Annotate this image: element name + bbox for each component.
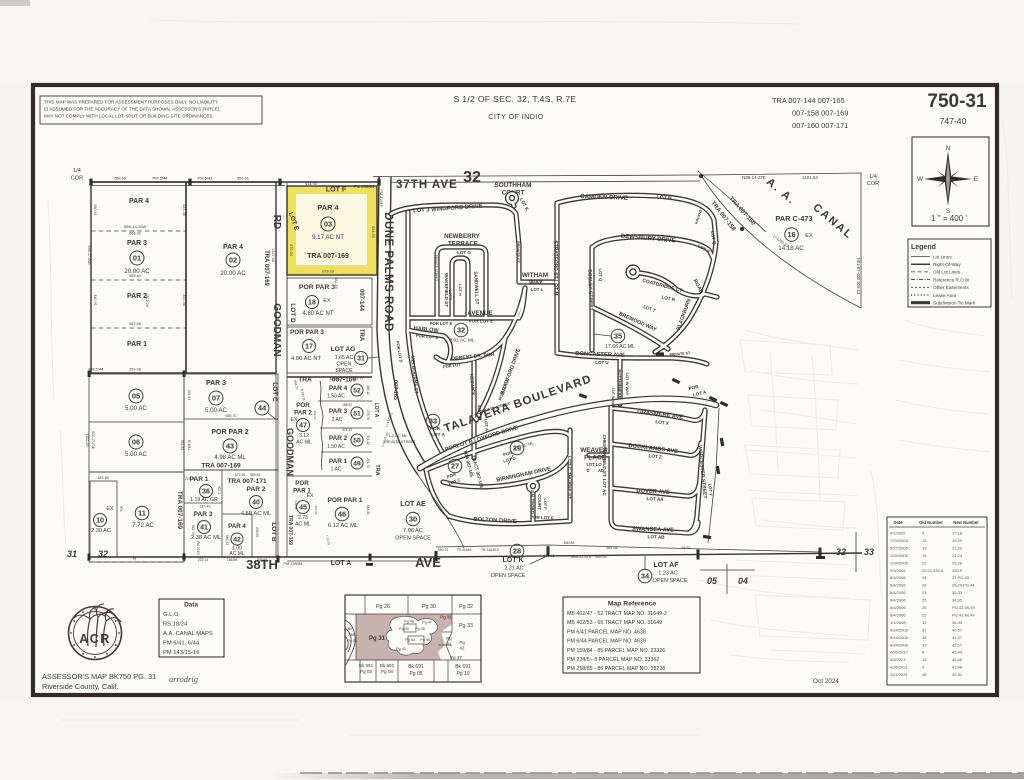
svg-text:arrodrig: arrodrig	[169, 674, 198, 684]
svg-text:34: 34	[641, 572, 650, 581]
svg-text:4/1/2002: 4/1/2002	[890, 531, 906, 536]
svg-text:699.95: 699.95	[596, 555, 607, 559]
svg-text:06: 06	[132, 438, 140, 447]
svg-text:LOT F: LOT F	[543, 499, 547, 511]
svg-text:7.06 AC: 7.06 AC	[403, 528, 423, 534]
svg-text:PAR 3: PAR 3	[127, 240, 147, 247]
svg-text:TRA 007-169: TRA 007-169	[176, 491, 183, 530]
svg-text:49-52: 49-52	[952, 672, 963, 677]
svg-text:19: 19	[922, 545, 927, 550]
svg-text:42: 42	[460, 646, 465, 651]
svg-text:183.50: 183.50	[97, 476, 109, 480]
svg-text:LOT W WAY: LOT W WAY	[625, 373, 630, 396]
svg-text:LOT C: LOT C	[271, 382, 278, 402]
svg-text:20.00 AC: 20.00 AC	[220, 270, 246, 277]
svg-text:S89-14-29W: S89-14-29W	[124, 224, 147, 229]
svg-text:S00-17-00E: S00-17-00E	[91, 431, 95, 450]
svg-text:4.98 AC ML: 4.98 AC ML	[214, 455, 246, 461]
svg-text:659.70: 659.70	[226, 414, 237, 418]
svg-text:25: 25	[922, 605, 927, 610]
svg-text:LOT F: LOT F	[448, 290, 452, 301]
svg-text:307.1: 307.1	[217, 486, 221, 494]
svg-text:17: 17	[305, 344, 313, 351]
svg-text:S 1/2 OF SEC. 32, T.4S, R.7E: S 1/2 OF SEC. 32, T.4S, R.7E	[454, 94, 577, 104]
svg-text:186.89: 186.89	[227, 558, 237, 562]
svg-text:658.68: 658.68	[114, 177, 126, 181]
svg-text:Bk 691: Bk 691	[380, 663, 395, 668]
svg-text:5/27/2005: 5/27/2005	[890, 545, 909, 550]
svg-text:GOODMAN: GOODMAN	[285, 428, 295, 476]
svg-text:43: 43	[226, 442, 234, 451]
svg-text:26: 26	[922, 583, 927, 588]
svg-text:Pg 43: Pg 43	[396, 647, 405, 651]
svg-text:188.52: 188.52	[342, 403, 352, 407]
svg-text:1.65 AC: 1.65 AC	[335, 355, 354, 361]
svg-text:AC ML: AC ML	[229, 551, 245, 557]
svg-text:LOT L: LOT L	[531, 287, 544, 292]
svg-text:45: 45	[299, 505, 307, 512]
svg-text:659.61: 659.61	[237, 177, 249, 181]
svg-text:748: 748	[348, 633, 354, 637]
svg-text:S89-51: S89-51	[250, 473, 261, 477]
svg-text:EX: EX	[307, 493, 314, 499]
svg-text:24: 24	[922, 575, 927, 580]
svg-text:7/23/2004: 7/23/2004	[890, 538, 909, 543]
svg-text:1.50 AC: 1.50 AC	[327, 394, 345, 400]
svg-text:Pg 49: Pg 49	[399, 627, 408, 631]
svg-text:LOT A: LOT A	[373, 403, 379, 418]
svg-text:COURT: COURT	[537, 494, 542, 510]
svg-text:12: 12	[922, 620, 927, 625]
svg-text:201.72: 201.72	[366, 458, 370, 468]
svg-text:27,PG.43: 27,PG.43	[952, 575, 970, 580]
svg-text:PRIVATE ST: PRIVATE ST	[516, 241, 520, 263]
svg-text:OPEN SPACE: OPEN SPACE	[491, 573, 526, 579]
svg-text:N: N	[946, 145, 951, 152]
svg-text:N89-31-51E: N89-31-51E	[571, 555, 592, 559]
svg-text:52: 52	[353, 387, 361, 394]
svg-text:Pg 01: Pg 01	[347, 639, 357, 643]
svg-text:COR: COR	[71, 176, 83, 182]
svg-text:LOT C THURNE ST.: LOT C THURNE ST.	[566, 456, 572, 500]
svg-text:01: 01	[133, 254, 141, 263]
svg-text:47,48: 47,48	[952, 665, 963, 670]
svg-text:17,18: 17,18	[952, 531, 963, 536]
svg-text:25: 25	[922, 612, 927, 617]
svg-text:37: 37	[922, 627, 927, 632]
svg-text:LOT U: LOT U	[595, 360, 608, 365]
svg-text:PAR 1: PAR 1	[329, 458, 348, 465]
svg-text:327.62: 327.62	[314, 505, 318, 515]
svg-text:10: 10	[96, 518, 104, 525]
svg-text:TRA 007-144 007-165: TRA 007-144 007-165	[772, 96, 845, 105]
svg-text:330-9: 330-9	[952, 568, 963, 573]
svg-text:14.18 AC: 14.18 AC	[778, 245, 804, 252]
svg-text:DUNE PALMS ROAD: DUNE PALMS ROAD	[382, 212, 394, 332]
svg-text:POR: POR	[430, 426, 441, 431]
svg-text:PAR 2: PAR 2	[247, 486, 266, 493]
svg-text:TRA 007-169: TRA 007-169	[307, 253, 349, 260]
svg-text:679.94: 679.94	[289, 244, 293, 256]
svg-text:Pg 47: Pg 47	[422, 621, 431, 625]
svg-text:47: 47	[299, 423, 307, 430]
svg-text:EX: EX	[323, 298, 331, 304]
svg-text:SOUTHHAM: SOUTHHAM	[495, 182, 532, 189]
svg-text:LOT Q: LOT Q	[598, 268, 603, 282]
svg-text:1/24/2006: 1/24/2006	[890, 553, 909, 558]
svg-text:37TH AVE: 37TH AVE	[396, 179, 458, 191]
svg-text:27: 27	[451, 462, 459, 471]
svg-text:ASSESSOR'S MAP BK750 PG. 31: ASSESSOR'S MAP BK750 PG. 31	[42, 672, 156, 681]
svg-text:02: 02	[229, 256, 237, 265]
svg-text:42: 42	[233, 536, 241, 543]
svg-text:D: D	[586, 468, 589, 473]
svg-text:N01-07-49E 929.13: N01-07-49E 929.13	[856, 258, 861, 295]
svg-text:278.76: 278.76	[366, 410, 370, 420]
svg-text:LOT LO: LOT LO	[586, 462, 602, 467]
svg-text:PM 159/84: PM 159/84	[283, 561, 303, 566]
svg-text:TRA: TRA	[298, 377, 312, 384]
svg-text:19,20: 19,20	[952, 538, 963, 543]
svg-text:POR PAR 2: POR PAR 2	[211, 429, 248, 436]
svg-text:1327.55: 1327.55	[271, 248, 275, 262]
svg-text:45,46: 45,46	[952, 657, 963, 662]
svg-text:LOT AE: LOT AE	[400, 501, 426, 508]
svg-text:LOT F: LOT F	[326, 187, 347, 194]
svg-text:4/26/2017: 4/26/2017	[890, 650, 909, 655]
svg-text:572.26: 572.26	[235, 473, 245, 477]
svg-text:44: 44	[258, 404, 267, 413]
svg-text:PAR 3: PAR 3	[206, 380, 226, 387]
svg-text:Oct 2024: Oct 2024	[813, 678, 839, 685]
svg-text:PAR 3: PAR 3	[329, 408, 348, 415]
svg-text:2.30 AC: 2.30 AC	[91, 528, 111, 534]
svg-text:750-31: 750-31	[927, 91, 987, 112]
svg-text:36: 36	[202, 489, 210, 496]
svg-text:Pg 48: Pg 48	[404, 620, 413, 624]
svg-text:1 " = 400 ': 1 " = 400 '	[931, 214, 967, 223]
svg-text:LOT B: LOT B	[270, 522, 277, 542]
svg-text:1.50 AC: 1.50 AC	[327, 444, 345, 450]
svg-text:LOT A: LOT A	[331, 560, 352, 567]
svg-text:POR: POR	[295, 480, 309, 487]
svg-text:PM 6/44: PM 6/44	[153, 176, 169, 181]
svg-text:W: W	[917, 176, 924, 183]
svg-text:Pg 44: Pg 44	[405, 638, 414, 642]
svg-text:PAR 4: PAR 4	[223, 244, 243, 251]
svg-text:29: 29	[513, 444, 521, 453]
svg-text:331.53: 331.53	[180, 440, 184, 450]
svg-text:MB 402/47 - 52 TRACT MAP NO: MB 402/47 - 52 TRACT MAP NO. 31649-2	[567, 611, 667, 617]
svg-text:25: 25	[922, 598, 927, 603]
svg-text:20.00 AC: 20.00 AC	[124, 268, 150, 275]
svg-text:38TH: 38TH	[246, 557, 278, 572]
svg-text:EX: EX	[119, 506, 124, 512]
svg-text:Pg: Pg	[459, 640, 465, 645]
svg-text:Right-Of-Way: Right-Of-Way	[933, 262, 961, 267]
svg-text:634.90: 634.90	[371, 226, 375, 238]
svg-text:35: 35	[614, 332, 622, 341]
svg-text:OPEN: OPEN	[337, 362, 352, 368]
svg-text:40: 40	[252, 500, 260, 507]
svg-text:Pg: Pg	[446, 636, 452, 641]
svg-text:TRA 007-169: TRA 007-169	[287, 515, 293, 545]
svg-text:30-33: 30-33	[952, 590, 963, 595]
svg-text:E: E	[974, 176, 978, 183]
svg-text:296.58: 296.58	[255, 527, 259, 537]
svg-text:40,57: 40,57	[952, 627, 963, 632]
svg-text:03: 03	[324, 220, 332, 229]
svg-text:1101.84: 1101.84	[802, 175, 818, 180]
svg-text:TR 31649: TR 31649	[457, 548, 472, 552]
svg-text:747-40: 747-40	[940, 116, 967, 126]
svg-text:9/24/2008: 9/24/2008	[890, 627, 909, 632]
svg-text:RD: RD	[271, 215, 282, 229]
svg-text:48: 48	[922, 672, 927, 677]
svg-text:374.12: 374.12	[366, 435, 370, 445]
svg-text:1322.20: 1322.20	[85, 434, 89, 447]
svg-text:Pg 46: Pg 46	[415, 627, 424, 631]
svg-text:TERRACE: TERRACE	[448, 241, 478, 248]
svg-text:RS 18/24: RS 18/24	[163, 622, 188, 628]
svg-text:POR PAR 3: POR PAR 3	[299, 284, 335, 291]
svg-text:PM 224/5: PM 224/5	[196, 541, 200, 555]
svg-text:5.00 AC: 5.00 AC	[125, 451, 148, 458]
svg-text:11/1/2024: 11/1/2024	[890, 672, 908, 677]
svg-text:660.43: 660.43	[225, 535, 229, 545]
svg-text:POR LOT E: POR LOT E	[469, 319, 494, 324]
svg-text:614.81: 614.81	[366, 505, 370, 515]
svg-text:Date: Date	[893, 520, 903, 525]
svg-text:PRIVATE STREET: PRIVATE STREET	[434, 255, 438, 282]
svg-text:658.42: 658.42	[129, 232, 141, 236]
svg-text:49: 49	[353, 460, 361, 467]
svg-text:05: 05	[707, 576, 718, 586]
svg-text:NEWBERRY: NEWBERRY	[444, 233, 481, 240]
svg-text:43,44: 43,44	[952, 650, 963, 655]
svg-text:9/24/2008: 9/24/2008	[890, 642, 909, 647]
svg-text:1 AC: 1 AC	[331, 467, 342, 473]
svg-text:17.66 AC ML: 17.66 AC ML	[605, 344, 635, 350]
svg-text:374.12: 374.12	[342, 428, 352, 432]
svg-text:Subdivision Tic Mark: Subdivision Tic Mark	[933, 301, 976, 306]
svg-text:POR LOT E: POR LOT E	[430, 321, 453, 326]
svg-text:TRA: TRA	[358, 329, 364, 342]
svg-text:54.52: 54.52	[682, 546, 691, 550]
svg-text:116.71: 116.71	[313, 411, 317, 420]
svg-text:PAR C-473: PAR C-473	[775, 214, 812, 223]
svg-text:PM 224/5 - 8 PARCEL MAP NO.: PM 224/5 - 8 PARCEL MAP NO. 33362	[567, 657, 659, 663]
svg-text:2 AC: 2 AC	[332, 417, 343, 423]
svg-text:Pg 31: Pg 31	[440, 615, 452, 620]
svg-text:SPACE: SPACE	[335, 368, 353, 374]
svg-text:007-169: 007-169	[332, 377, 357, 384]
svg-text:PAR 4: PAR 4	[129, 198, 149, 205]
svg-text:39: 39	[922, 642, 927, 647]
svg-text:217.42: 217.42	[200, 505, 211, 509]
svg-text:PAR 2: PAR 2	[329, 435, 348, 442]
svg-text:OPEN SPACE: OPEN SPACE	[395, 536, 431, 542]
svg-text:LOT A: LOT A	[431, 432, 445, 437]
svg-text:4.80 AC NT: 4.80 AC NT	[291, 356, 321, 362]
svg-text:Pg 32: Pg 32	[459, 604, 473, 610]
svg-text:PG.43,48,49: PG.43,48,49	[952, 612, 975, 617]
svg-text:4.58 AC ML: 4.58 AC ML	[241, 511, 272, 517]
svg-text:Pg 30: Pg 30	[422, 604, 436, 610]
svg-text:PAR 2: PAR 2	[294, 410, 312, 417]
svg-text:18: 18	[308, 300, 316, 307]
svg-text:THIS MAP WAS PREPARED FOR ASSE: THIS MAP WAS PREPARED FOR ASSESSMENT PUR…	[44, 100, 218, 105]
svg-text:13: 13	[922, 657, 927, 662]
svg-text:11: 11	[138, 509, 146, 518]
svg-text:PAR 4: PAR 4	[329, 385, 348, 392]
svg-text:PG.43,45-49: PG.43,45-49	[952, 605, 975, 610]
svg-text:PM 143/15-16: PM 143/15-16	[163, 650, 199, 656]
svg-text:7.72 AC: 7.72 AC	[132, 522, 155, 529]
svg-text:550.73: 550.73	[438, 548, 448, 552]
svg-text:2.75: 2.75	[298, 515, 308, 521]
svg-text:007-160 007-171: 007-160 007-171	[792, 121, 848, 130]
svg-text:Pg 37: Pg 37	[450, 655, 462, 660]
svg-text:Bk: Bk	[348, 627, 353, 631]
svg-text:23: 23	[922, 590, 927, 595]
svg-text:PAR 4: PAR 4	[317, 203, 339, 212]
svg-text:PRIVATE STREET: PRIVATE STREET	[384, 440, 416, 444]
svg-text:LOT G: LOT G	[457, 250, 471, 255]
svg-text:IS ASSUMED FOR THE ACCURACY OF: IS ASSUMED FOR THE ACCURACY OF THE DATA …	[44, 107, 221, 112]
svg-text:32: 32	[457, 326, 465, 335]
svg-text:Old Lot Lines: Old Lot Lines	[933, 270, 961, 275]
svg-text:8/4/2006: 8/4/2006	[890, 605, 906, 610]
svg-text:8/4/2006: 8/4/2006	[890, 598, 906, 603]
svg-text:4/26/2021: 4/26/2021	[890, 665, 909, 670]
svg-text:1/1/2008: 1/1/2008	[890, 620, 906, 625]
svg-text:22: 22	[922, 560, 927, 565]
svg-text:180.84: 180.84	[564, 541, 575, 545]
svg-text:New Number: New Number	[953, 520, 979, 525]
svg-text:MAY NOT COMPLY WITH LOCAL LOT-: MAY NOT COMPLY WITH LOCAL LOT-SPLIT OR B…	[44, 114, 214, 119]
svg-text:007-144: 007-144	[358, 289, 364, 312]
svg-text:PAR 2: PAR 2	[127, 293, 147, 300]
svg-text:Map Reference: Map Reference	[608, 601, 657, 608]
svg-text:LOT AG: LOT AG	[331, 346, 356, 353]
svg-text:9/24/2008: 9/24/2008	[890, 635, 909, 640]
svg-text:G.L.O.: G.L.O.	[163, 612, 180, 618]
svg-text:9.17 AC NT: 9.17 AC NT	[312, 234, 344, 241]
svg-text:POR PAR 3: POR PAR 3	[290, 329, 324, 336]
svg-text:1.19 AC GR: 1.19 AC GR	[190, 497, 218, 503]
svg-text:CHESTERFIELD ST. LOT AC: CHESTERFIELD ST. LOT AC	[602, 434, 607, 496]
svg-text:Other Easements: Other Easements	[933, 285, 969, 290]
svg-text:Pg 26: Pg 26	[376, 604, 390, 610]
svg-text:TRA 007-171: TRA 007-171	[227, 478, 267, 485]
svg-text:Bk 691: Bk 691	[455, 664, 471, 670]
svg-text:46: 46	[338, 510, 346, 519]
svg-text:N89-14-27E: N89-14-27E	[742, 175, 766, 180]
svg-text:Pg 05: Pg 05	[409, 671, 422, 677]
svg-text:PM 6/41 PARCEL MAP NO. 4638: PM 6/41 PARCEL MAP NO. 4638	[567, 629, 646, 635]
svg-text:PM 159/84 - 85 PARCEL MAP N: PM 159/84 - 85 PARCEL MAP NO. 23326	[567, 648, 665, 654]
svg-text:1/24/2006: 1/24/2006	[890, 560, 909, 565]
svg-text:Pg 31: Pg 31	[369, 636, 386, 642]
svg-text:TRA: TRA	[374, 464, 380, 475]
svg-text:330.91: 330.91	[93, 294, 97, 306]
svg-text:33: 33	[864, 547, 874, 557]
svg-text:163.12: 163.12	[366, 385, 370, 395]
svg-text:4.80 AC NT: 4.80 AC NT	[302, 311, 333, 317]
svg-text:05: 05	[132, 392, 140, 401]
svg-text:CITY OF INDIO: CITY OF INDIO	[488, 112, 543, 121]
svg-text:TRA 007-169: TRA 007-169	[263, 250, 269, 286]
svg-text:PAR 3: PAR 3	[194, 511, 213, 518]
svg-text:349.91: 349.91	[294, 500, 298, 510]
svg-text:STRATFORD ST LOT M: STRATFORD ST LOT M	[552, 240, 558, 295]
svg-text:GOODMAN: GOODMAN	[271, 303, 282, 356]
svg-text:POR: POR	[296, 402, 310, 409]
svg-text:8/4/2006: 8/4/2006	[890, 575, 906, 580]
svg-text:AC ML: AC ML	[295, 522, 311, 528]
svg-text:Old Number: Old Number	[919, 520, 943, 525]
svg-text:202.14: 202.14	[198, 558, 208, 562]
svg-text:COR: COR	[867, 181, 879, 187]
svg-text:LOT W WAY: LOT W WAY	[611, 388, 615, 409]
svg-text:41: 41	[200, 525, 208, 532]
svg-text:28,29,PG.44: 28,29,PG.44	[952, 583, 975, 588]
svg-text:15: 15	[922, 538, 927, 543]
svg-text:PM 31649: PM 31649	[379, 189, 383, 206]
svg-text:Pg 33: Pg 33	[459, 623, 473, 629]
svg-text:PM 5/41: PM 5/41	[198, 176, 214, 181]
svg-text:Riverside County, Calif.: Riverside County, Calif.	[42, 682, 119, 691]
svg-text:Bk 691: Bk 691	[408, 664, 424, 670]
svg-text:Reference R.O.W.: Reference R.O.W.	[933, 277, 970, 282]
svg-text:SALTEORD: SALTEORD	[530, 490, 535, 514]
svg-text:32: 32	[463, 169, 481, 186]
svg-text:38: 38	[922, 635, 927, 640]
svg-text:42,57: 42,57	[952, 642, 963, 647]
svg-text:31: 31	[357, 356, 365, 363]
svg-text:PAR 4: PAR 4	[228, 523, 246, 530]
svg-text:3.12: 3.12	[299, 433, 309, 439]
svg-text:662.70: 662.70	[191, 525, 195, 535]
svg-text:AVENUE: AVENUE	[467, 310, 492, 317]
svg-text:1.23 AC: 1.23 AC	[658, 571, 677, 577]
svg-text:TR 31649-2: TR 31649-2	[481, 548, 499, 552]
svg-text:PAR 1: PAR 1	[127, 341, 147, 348]
svg-text:TRA 007-169: TRA 007-169	[201, 463, 241, 470]
svg-text:LOT K: LOT K	[503, 557, 524, 564]
svg-text:Lease Area: Lease Area	[933, 293, 957, 298]
svg-text:007-158 007-169: 007-158 007-169	[792, 109, 848, 118]
svg-text:51: 51	[353, 410, 361, 417]
svg-text:41: 41	[447, 642, 452, 647]
svg-text:217.44: 217.44	[185, 477, 195, 481]
svg-text:WITHAM: WITHAM	[522, 272, 548, 279]
svg-text:23,24: 23,24	[952, 553, 963, 558]
svg-text:POR PAR 1: POR PAR 1	[327, 497, 362, 504]
svg-text:Lot Lines: Lot Lines	[933, 254, 952, 259]
svg-text:259.08: 259.08	[129, 368, 141, 372]
svg-text:50: 50	[353, 437, 361, 444]
svg-text:LOT AB: LOT AB	[648, 534, 666, 540]
svg-text:AC ML: AC ML	[296, 440, 312, 446]
svg-text:20,21,330-8: 20,21,330-8	[922, 568, 944, 573]
svg-text:657.06: 657.06	[129, 322, 141, 326]
svg-text:36-39: 36-39	[952, 620, 963, 625]
svg-text:2.38 AC ML: 2.38 AC ML	[191, 535, 222, 541]
svg-text:A.A. CANAL MAPS: A.A. CANAL MAPS	[163, 631, 213, 637]
svg-text:4/6/2021: 4/6/2021	[890, 657, 906, 662]
